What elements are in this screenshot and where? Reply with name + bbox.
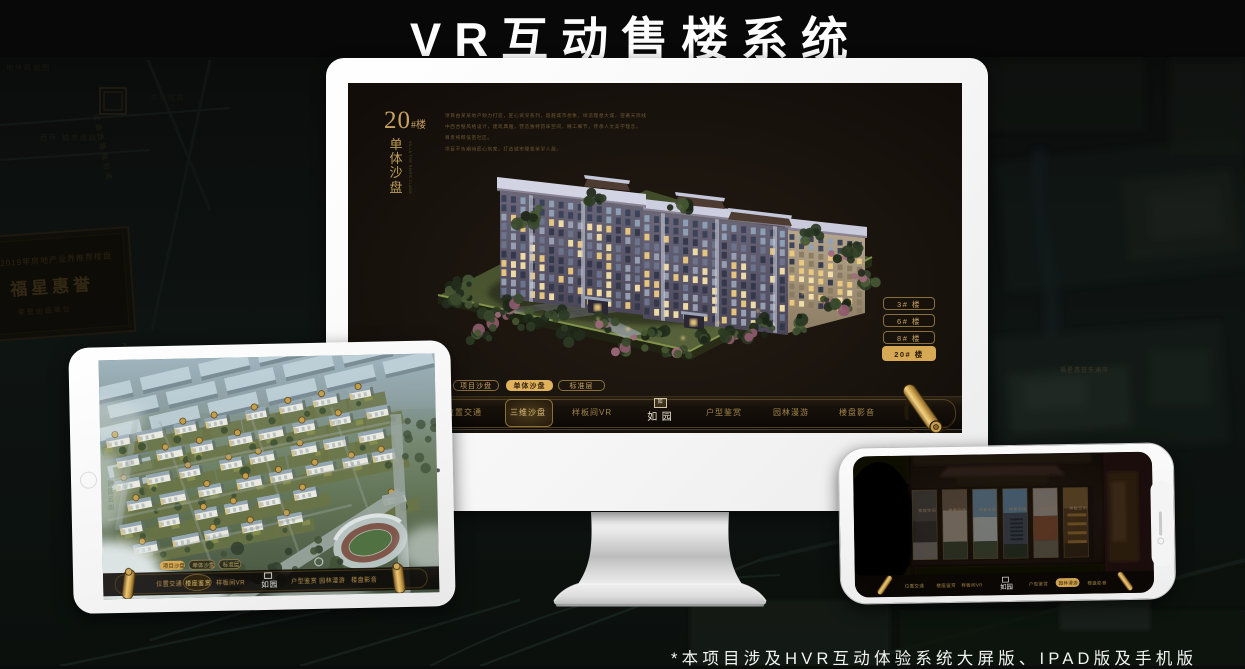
svg-text:中环线路: 中环线路 bbox=[150, 93, 186, 102]
svg-text:如园: 如园 bbox=[261, 579, 278, 589]
svg-text:西环 城市道路: 西环 城市道路 bbox=[40, 133, 98, 142]
svg-text:如园: 如园 bbox=[1000, 582, 1013, 591]
svg-text:福星惠誉东澜岸: 福星惠誉东澜岸 bbox=[1060, 366, 1109, 374]
